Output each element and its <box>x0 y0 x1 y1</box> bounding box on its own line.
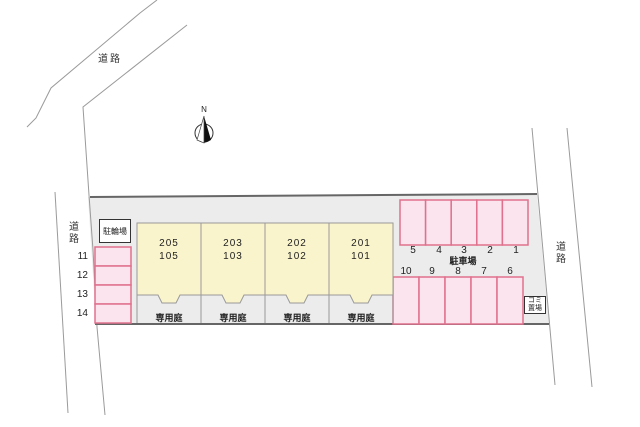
private-garden-label: 専用庭 <box>144 311 194 324</box>
unit-number-upper: 202 <box>267 237 327 250</box>
road-label-left: 道路 <box>66 221 78 245</box>
parking-stall-7 <box>471 277 497 324</box>
stall-number-3: 3 <box>454 245 474 257</box>
parking-stall-9 <box>419 277 445 324</box>
stall-number-1: 1 <box>506 245 526 257</box>
site-plan-canvas <box>0 0 640 427</box>
parking-stall-2 <box>477 200 503 245</box>
stall-number-14: 14 <box>70 308 88 319</box>
unit-number-upper: 203 <box>203 237 263 250</box>
parking-stall-5 <box>400 200 426 245</box>
unit-label-201-101: 201 101 <box>331 237 391 263</box>
parking-stall-14 <box>95 304 131 323</box>
parking-stall-4 <box>426 200 452 245</box>
stall-number-2: 2 <box>480 245 500 257</box>
unit-number-lower: 103 <box>203 250 263 263</box>
stall-number-6: 6 <box>500 266 520 278</box>
garbage-line2: 置場 <box>528 305 542 312</box>
garbage-line1: ゴミ <box>528 297 542 304</box>
unit-label-203-103: 203 103 <box>203 237 263 263</box>
garbage-area-box: ゴミ 置場 <box>524 296 546 314</box>
stall-number-5: 5 <box>403 245 423 257</box>
road-label-top: 道路 <box>98 54 122 66</box>
unit-label-202-102: 202 102 <box>267 237 327 263</box>
north-compass-icon <box>195 116 213 143</box>
unit-number-lower: 102 <box>267 250 327 263</box>
garbage-area-label: ゴミ 置場 <box>528 297 542 313</box>
parking-stall-11 <box>95 247 131 266</box>
unit-number-lower: 101 <box>331 250 391 263</box>
site-plan: 道路 道路 道路 N 駐輪場 11 12 13 14 205 105 203 1… <box>0 0 640 427</box>
stall-number-12: 12 <box>70 270 88 281</box>
unit-number-upper: 205 <box>139 237 199 250</box>
bicycle-parking-box: 駐輪場 <box>99 219 131 243</box>
stall-number-11: 11 <box>70 251 88 262</box>
stall-number-4: 4 <box>429 245 449 257</box>
parking-stall-8 <box>445 277 471 324</box>
parking-stall-3 <box>451 200 477 245</box>
bicycle-parking-label: 駐輪場 <box>103 226 127 237</box>
stall-number-10: 10 <box>396 266 416 278</box>
stall-number-13: 13 <box>70 289 88 300</box>
building-unit-203-103 <box>201 223 265 303</box>
parking-lot-label: 駐車場 <box>441 256 485 266</box>
building-unit-205-105 <box>137 223 201 303</box>
unit-number-lower: 105 <box>139 250 199 263</box>
stall-number-9: 9 <box>422 266 442 278</box>
unit-number-upper: 201 <box>331 237 391 250</box>
parking-stall-10 <box>393 277 419 324</box>
parking-stall-1 <box>502 200 528 245</box>
private-garden-label: 専用庭 <box>272 311 322 324</box>
road-label-right: 道路 <box>553 241 565 265</box>
right-road-outer-edge <box>567 128 592 387</box>
compass-north-label: N <box>197 105 211 114</box>
stall-number-7: 7 <box>474 266 494 278</box>
stall-number-8: 8 <box>448 266 468 278</box>
parking-stall-6 <box>497 277 523 324</box>
private-garden-label: 専用庭 <box>208 311 258 324</box>
building-unit-202-102 <box>265 223 329 303</box>
parking-stall-12 <box>95 266 131 285</box>
parking-stall-13 <box>95 285 131 304</box>
private-garden-label: 専用庭 <box>336 311 386 324</box>
building-unit-201-101 <box>329 223 393 303</box>
unit-label-205-105: 205 105 <box>139 237 199 263</box>
